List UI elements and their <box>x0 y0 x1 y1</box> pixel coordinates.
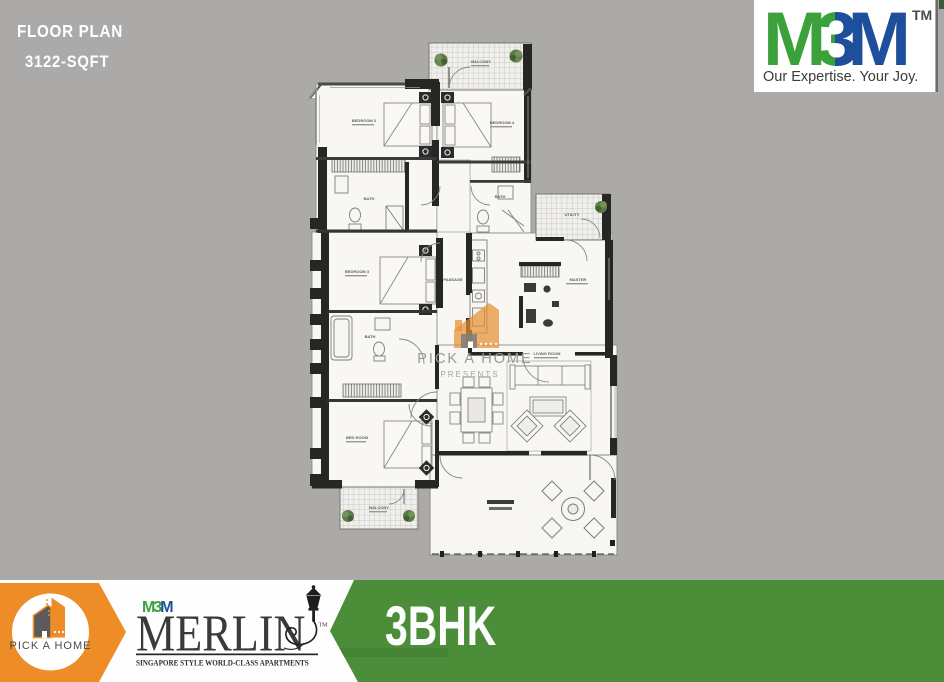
svg-text:TM: TM <box>319 623 329 629</box>
svg-text:BEDROOM 4: BEDROOM 4 <box>490 120 515 125</box>
svg-text:PASSAGE: PASSAGE <box>443 277 463 282</box>
svg-text:PICK A HOME: PICK A HOME <box>10 640 92 652</box>
svg-text:PRESENTS: PRESENTS <box>440 370 499 379</box>
svg-text:BED ROOM: BED ROOM <box>346 435 369 440</box>
svg-text:LIVING ROOM: LIVING ROOM <box>534 351 562 356</box>
svg-text:BATH: BATH <box>364 196 375 201</box>
svg-text:BATH: BATH <box>495 194 506 199</box>
svg-text:MASTER: MASTER <box>570 277 587 282</box>
svg-text:PICK A HOME: PICK A HOME <box>417 351 532 367</box>
svg-text:BATH: BATH <box>365 334 376 339</box>
svg-text:BALCONY: BALCONY <box>369 505 389 510</box>
svg-text:BALCONY: BALCONY <box>471 59 491 64</box>
svg-text:UTILITY: UTILITY <box>564 212 579 217</box>
svg-text:BEDROOM 3: BEDROOM 3 <box>345 269 370 274</box>
svg-text:BEDROOM 2: BEDROOM 2 <box>352 118 377 123</box>
svg-text:14'0" X 11'6": 14'0" X 11'6" <box>353 125 375 129</box>
svg-text:SINGAPORE STYLE WORLD-CLASS AP: SINGAPORE STYLE WORLD-CLASS APARTMENTS <box>136 658 309 668</box>
